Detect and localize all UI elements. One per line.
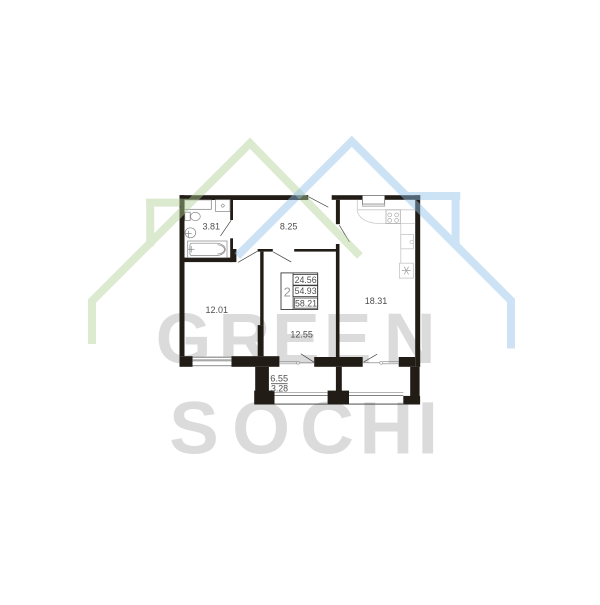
svg-text:12.01: 12.01 bbox=[206, 305, 229, 315]
svg-text:3.81: 3.81 bbox=[203, 221, 221, 231]
svg-text:3.28: 3.28 bbox=[271, 384, 288, 394]
svg-text:18.31: 18.31 bbox=[365, 296, 388, 306]
svg-text:2: 2 bbox=[284, 285, 291, 300]
svg-text:12.55: 12.55 bbox=[290, 330, 313, 340]
svg-text:24.56: 24.56 bbox=[295, 275, 317, 285]
svg-text:S: S bbox=[169, 387, 219, 470]
svg-text:6.55: 6.55 bbox=[270, 373, 288, 383]
svg-text:I: I bbox=[417, 387, 438, 470]
svg-text:8.25: 8.25 bbox=[280, 221, 298, 231]
svg-text:58.21: 58.21 bbox=[295, 298, 317, 308]
svg-text:54.93: 54.93 bbox=[295, 286, 317, 296]
